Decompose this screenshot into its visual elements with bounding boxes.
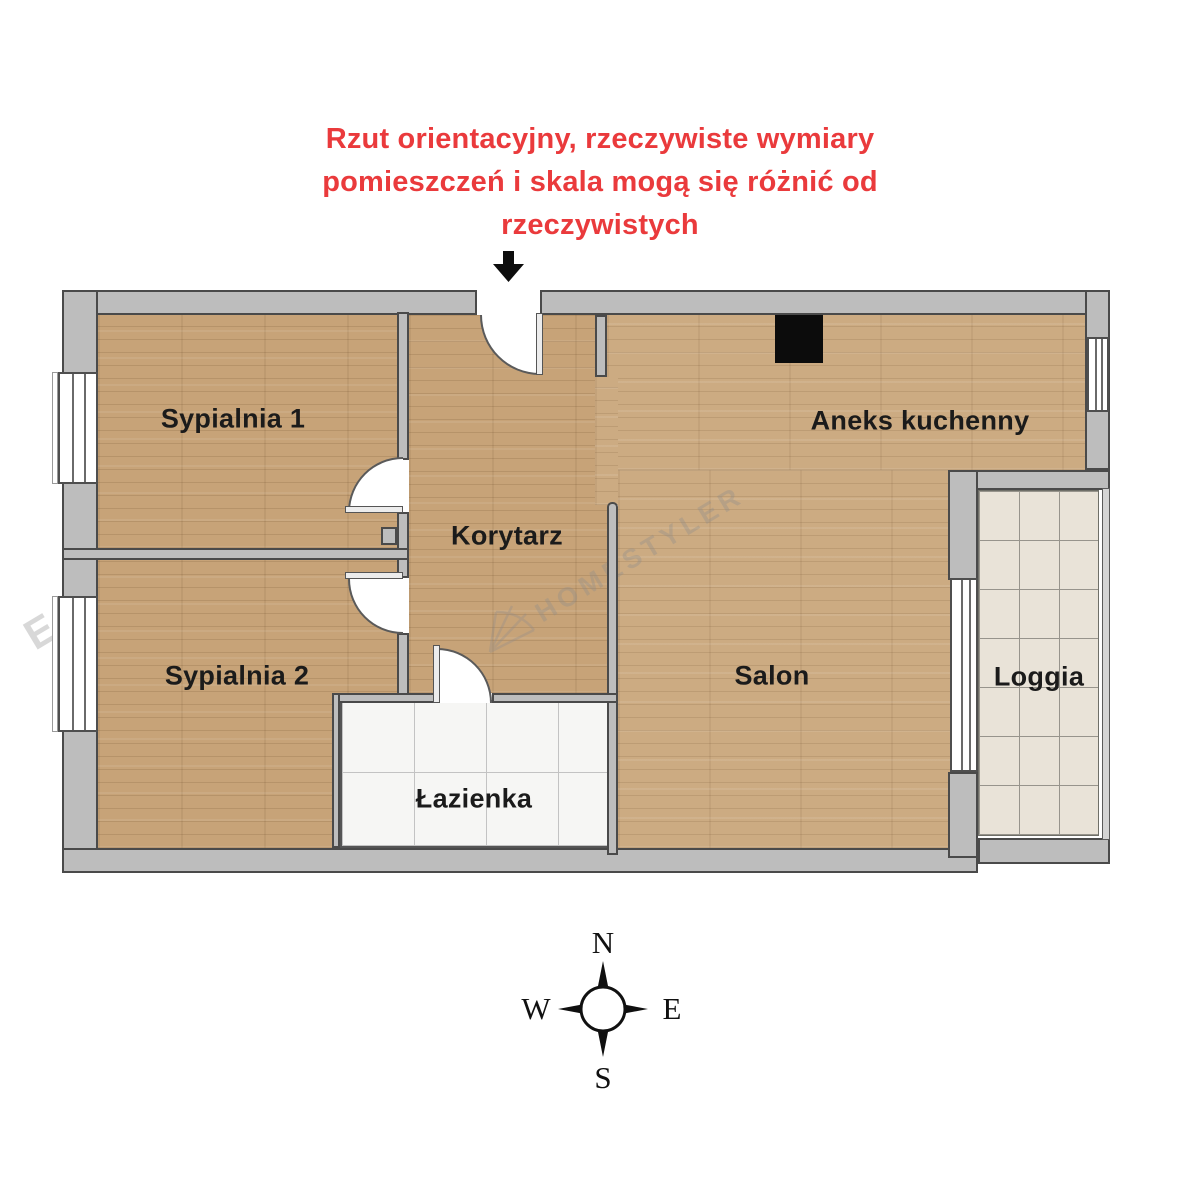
- wall-between-bedrooms: [62, 548, 409, 560]
- window-aneks: [1087, 337, 1109, 412]
- loggia-balustrade: [1102, 488, 1110, 840]
- wall-korytarz-salon: [607, 502, 618, 855]
- wall-loggia-left-upper: [948, 470, 978, 580]
- compass-letter-e: E: [663, 991, 682, 1026]
- window-frame-line: [1101, 339, 1103, 410]
- wall-korytarz-syp-b: [397, 512, 409, 578]
- label-sypialnia-1: Sypialnia 1: [161, 404, 305, 435]
- compass-rose: N S W E: [520, 928, 690, 1093]
- window-frame-line: [72, 374, 74, 482]
- sypialnia-1-door-leaf: [345, 506, 403, 513]
- window-frame-line: [1095, 339, 1097, 410]
- label-aneks: Aneks kuchenny: [811, 406, 1030, 437]
- wall-bath-top-right: [492, 693, 618, 703]
- compass-letter-w: W: [521, 991, 551, 1026]
- wall-stub-kitchen: [595, 315, 607, 377]
- label-lazienka: Łazienka: [416, 784, 532, 815]
- compass-letter-s: S: [594, 1060, 611, 1093]
- wall-bath-top-left: [332, 693, 437, 703]
- watermark-fan-icon: [482, 598, 538, 656]
- compass-circle: [581, 987, 625, 1031]
- compass-letter-n: N: [592, 928, 614, 960]
- window-frame-line: [961, 580, 963, 770]
- wall-bottom-main: [62, 848, 978, 873]
- window-frame-line: [72, 598, 74, 730]
- window-salon-loggia: [950, 578, 978, 772]
- label-korytarz: Korytarz: [451, 521, 563, 552]
- window-frame-line: [969, 580, 971, 770]
- entrance-door-leaf: [536, 313, 543, 375]
- wall-bottom-loggia: [978, 838, 1110, 864]
- window-sypialnia-1: [58, 372, 98, 484]
- floor-passage: [595, 377, 618, 505]
- lazienka-door-leaf: [433, 645, 440, 703]
- floor-aneks: [607, 315, 1085, 470]
- window-sypialnia-2: [58, 596, 98, 732]
- label-loggia: Loggia: [994, 662, 1084, 693]
- floor-plan-page: Rzut orientacyjny, rzeczywiste wymiary p…: [0, 0, 1200, 1200]
- wall-bath-left: [332, 693, 340, 848]
- label-sypialnia-2: Sypialnia 2: [165, 661, 309, 692]
- floor-lazienka: [340, 700, 611, 848]
- window-frame-line: [84, 598, 86, 730]
- wall-top-right: [540, 290, 1110, 315]
- window-frame-line: [84, 374, 86, 482]
- floor-salon: [618, 470, 950, 848]
- wall-top-left: [62, 290, 477, 315]
- label-salon: Salon: [734, 661, 809, 692]
- wall-loggia-left-lower: [948, 772, 978, 858]
- duct-box: [381, 527, 397, 545]
- wall-korytarz-syp1-a: [397, 312, 409, 460]
- sypialnia-2-door-leaf: [345, 572, 403, 579]
- kitchen-appliance: [775, 315, 823, 363]
